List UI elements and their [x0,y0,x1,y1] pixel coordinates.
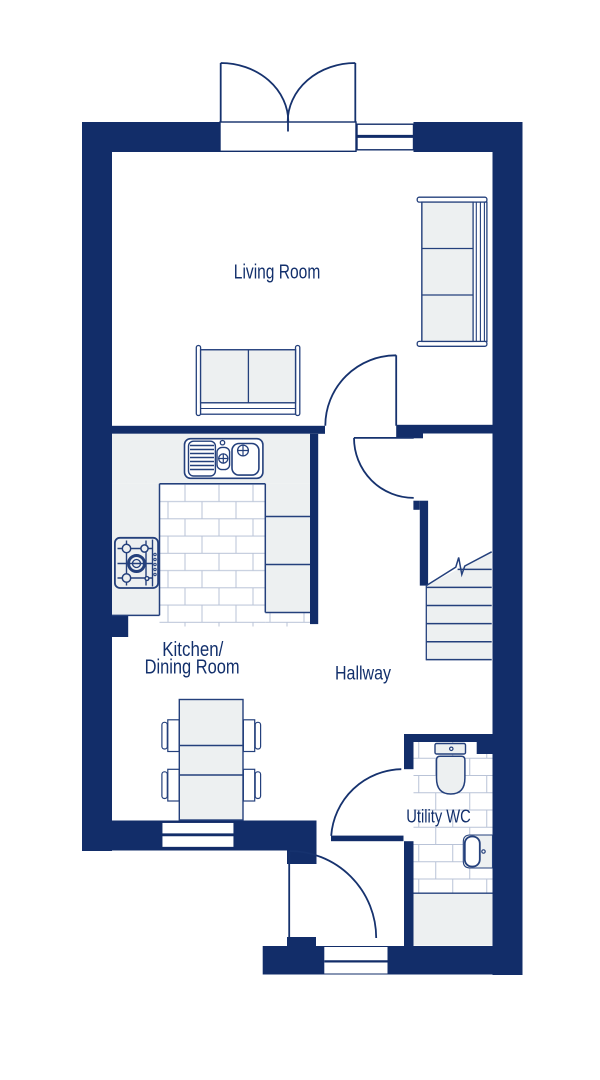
svg-text:Hallway: Hallway [335,664,391,685]
svg-text:Living Room: Living Room [234,261,320,283]
svg-text:Utility WC: Utility WC [406,806,471,827]
svg-text:Dining Room: Dining Room [145,657,240,679]
